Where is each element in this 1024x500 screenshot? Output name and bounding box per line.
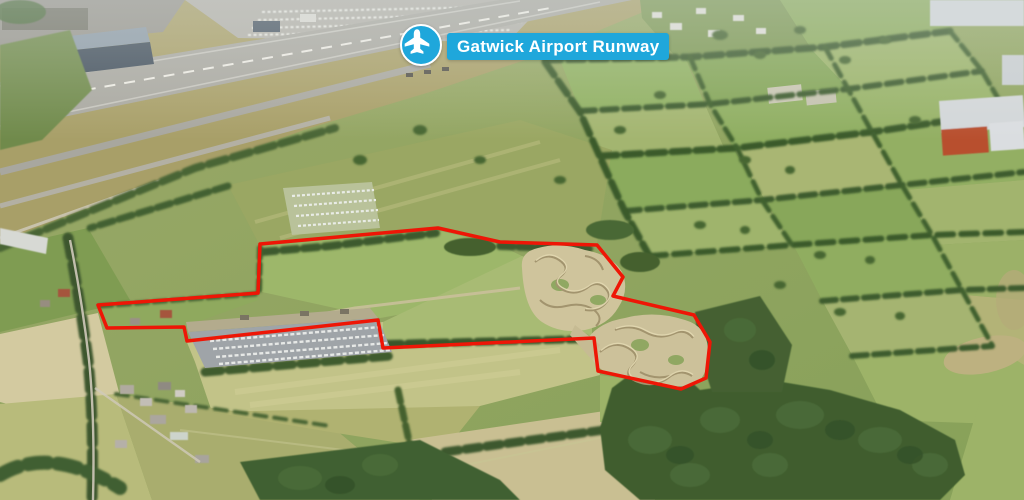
aerial-map [0,0,1024,500]
atmospheric-haze [0,0,1024,500]
aerial-map-screenshot: Gatwick Airport Runway [0,0,1024,500]
